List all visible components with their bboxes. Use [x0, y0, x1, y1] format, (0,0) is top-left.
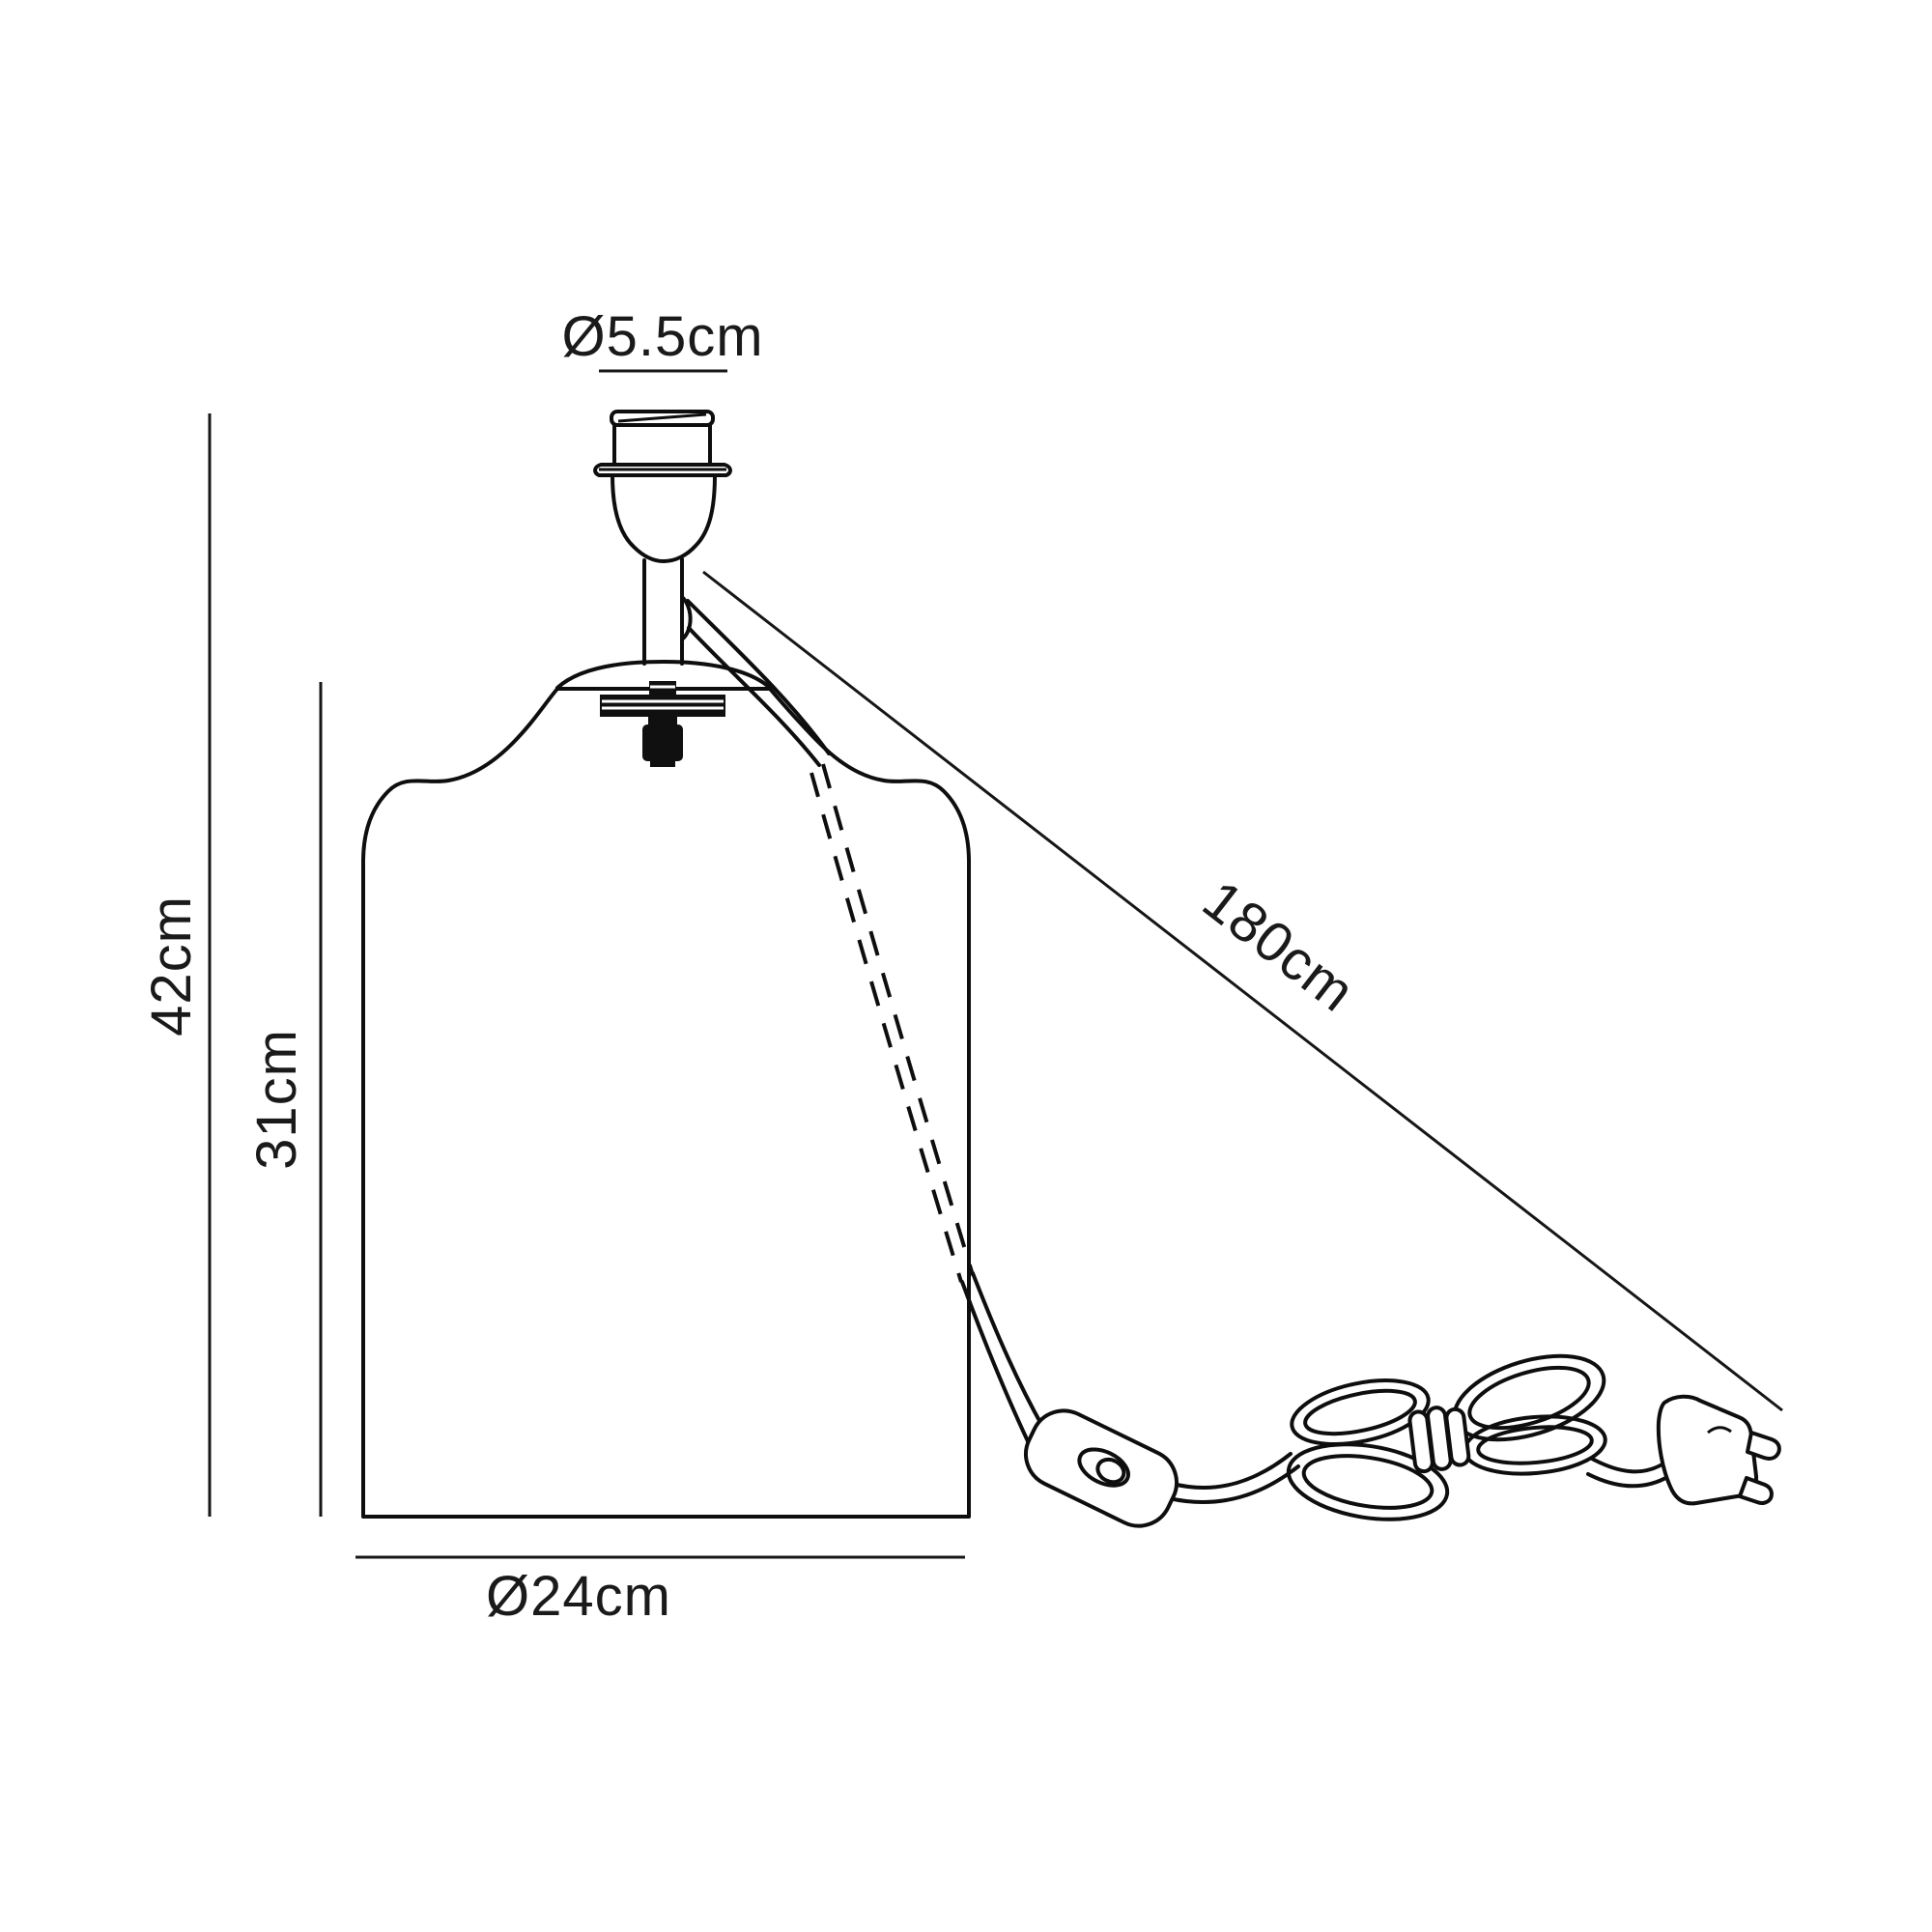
switch-body — [1015, 1400, 1188, 1537]
cable-bow — [1283, 1340, 1613, 1529]
cable-length-dimension-line — [703, 572, 1782, 1410]
knurled-nut-tip — [650, 761, 675, 767]
dimension-lines — [210, 371, 1782, 1557]
dimension-labels: Ø5.5cm 42cm 31cm Ø24cm 180cm — [140, 305, 1367, 1628]
bow-center-wrap — [1408, 1405, 1469, 1472]
knurled-nut — [642, 724, 683, 761]
cable-to-switch-outer — [973, 1273, 1043, 1428]
socket-cup — [612, 475, 715, 561]
power-plug — [1659, 1397, 1779, 1504]
lamp-dimension-diagram: Ø5.5cm 42cm 31cm Ø24cm 180cm — [0, 0, 1932, 1932]
cable-hidden-left — [811, 773, 961, 1282]
inline-switch — [1015, 1400, 1188, 1537]
plug-pin-bottom — [1740, 1478, 1772, 1503]
cable-length-label: 180cm — [1191, 868, 1366, 1024]
lamp-body — [363, 662, 969, 1517]
socket-top-ring-inner-line — [618, 414, 706, 421]
plug-pin-top — [1747, 1433, 1779, 1459]
body-height-label: 31cm — [245, 1029, 308, 1170]
bow-loop-ul-inner — [1301, 1382, 1418, 1441]
cable-to-switch-inner — [962, 1282, 1028, 1441]
socket-diameter-label: Ø5.5cm — [561, 305, 763, 368]
threaded-fitting — [600, 681, 725, 767]
threaded-bar — [600, 695, 725, 717]
base-diameter-label: Ø24cm — [486, 1565, 671, 1628]
overall-height-label: 42cm — [140, 895, 203, 1037]
body-outline — [363, 689, 969, 1517]
cable-bow-to-plug-upper — [1592, 1459, 1665, 1471]
cable-hidden-right — [823, 764, 973, 1275]
threaded-rod — [648, 717, 677, 724]
lamp-socket — [595, 412, 730, 664]
cable-bow-to-plug-lower — [1588, 1474, 1669, 1486]
power-cable — [688, 601, 1669, 1502]
diagram-canvas: Ø5.5cm 42cm 31cm Ø24cm 180cm — [0, 0, 1932, 1932]
